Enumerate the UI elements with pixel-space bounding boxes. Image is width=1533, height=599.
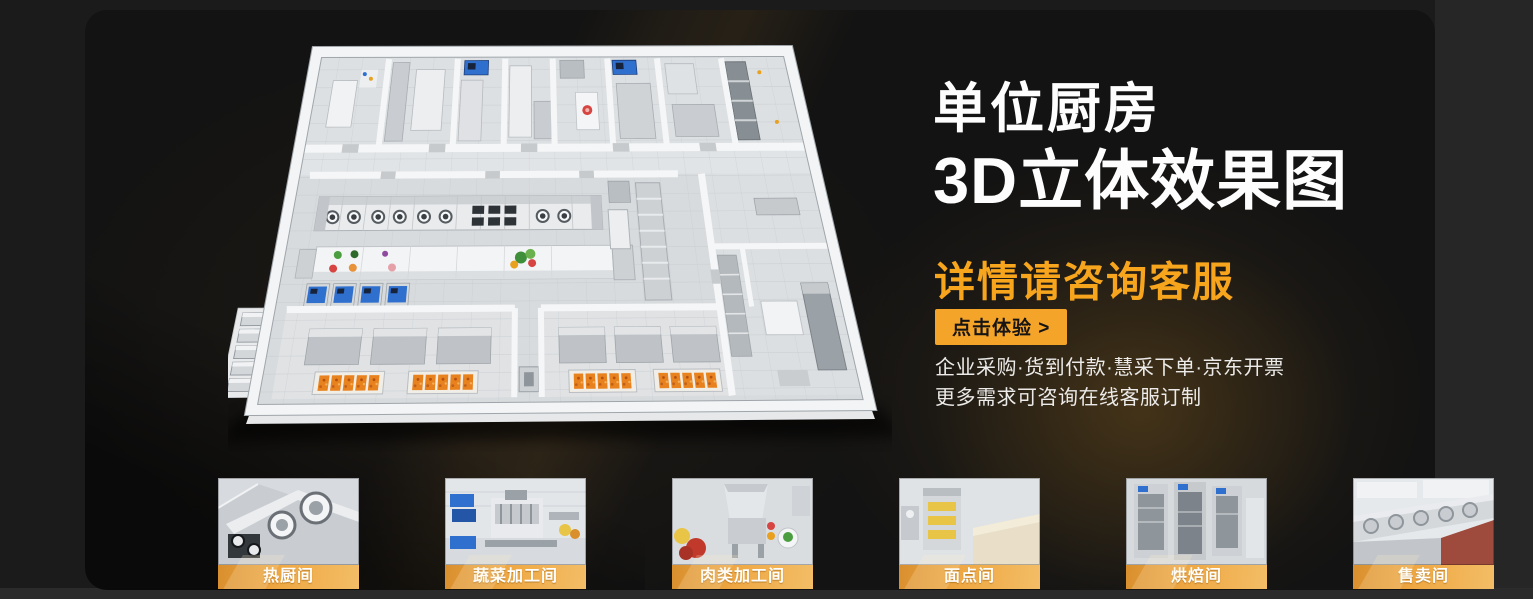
thumbnail-image [218,478,359,565]
thumbnail-image [672,478,813,565]
feature-line-2: 更多需求可咨询在线客服订制 [935,381,1202,410]
gallery-item-label: 肉类加工间 [672,565,813,589]
thumbnail-image [1353,478,1494,565]
gallery-item-label: 面点间 [899,565,1040,589]
page-title-line2: 3D立体效果图 [933,128,1348,222]
gallery-item-vegetable-processing[interactable]: 蔬菜加工间 [445,478,586,589]
thumbnail-image [1126,478,1267,565]
thumbnail-image [899,478,1040,565]
gallery-item-hot-kitchen[interactable]: 热厨间 [218,478,359,589]
subtitle-consult: 详情请咨询客服 [934,248,1235,308]
gallery-item-meat-processing[interactable]: 肉类加工间 [672,478,813,589]
gallery-item-baking[interactable]: 烘焙间 [1126,478,1267,589]
gallery-item-selling[interactable]: 售卖间 [1353,478,1494,589]
banner-stage: 单位厨房 3D立体效果图 详情请咨询客服 点击体验 > 企业采购·货到付款·慧采… [0,0,1533,599]
hero-text-block: 单位厨房 3D立体效果图 详情请咨询客服 点击体验 > 企业采购·货到付款·慧采… [933,0,1433,460]
feature-line-1: 企业采购·货到付款·慧采下单·京东开票 [935,351,1284,380]
gallery-item-label: 蔬菜加工间 [445,565,586,589]
gallery-item-label: 售卖间 [1353,565,1494,589]
gallery-item-pastry[interactable]: 面点间 [899,478,1040,589]
room-gallery: 热厨间 蔬菜加工间 肉类加工间 面点间 烘焙间 售卖间 凉菜间 消洗间 [178,462,1533,599]
gallery-item-label: 热厨间 [218,565,359,589]
gallery-item-label: 烘焙间 [1126,565,1267,589]
kitchen-floorplan-3d [228,28,892,452]
thumbnail-image [445,478,586,565]
cta-button[interactable]: 点击体验 > [935,309,1067,345]
